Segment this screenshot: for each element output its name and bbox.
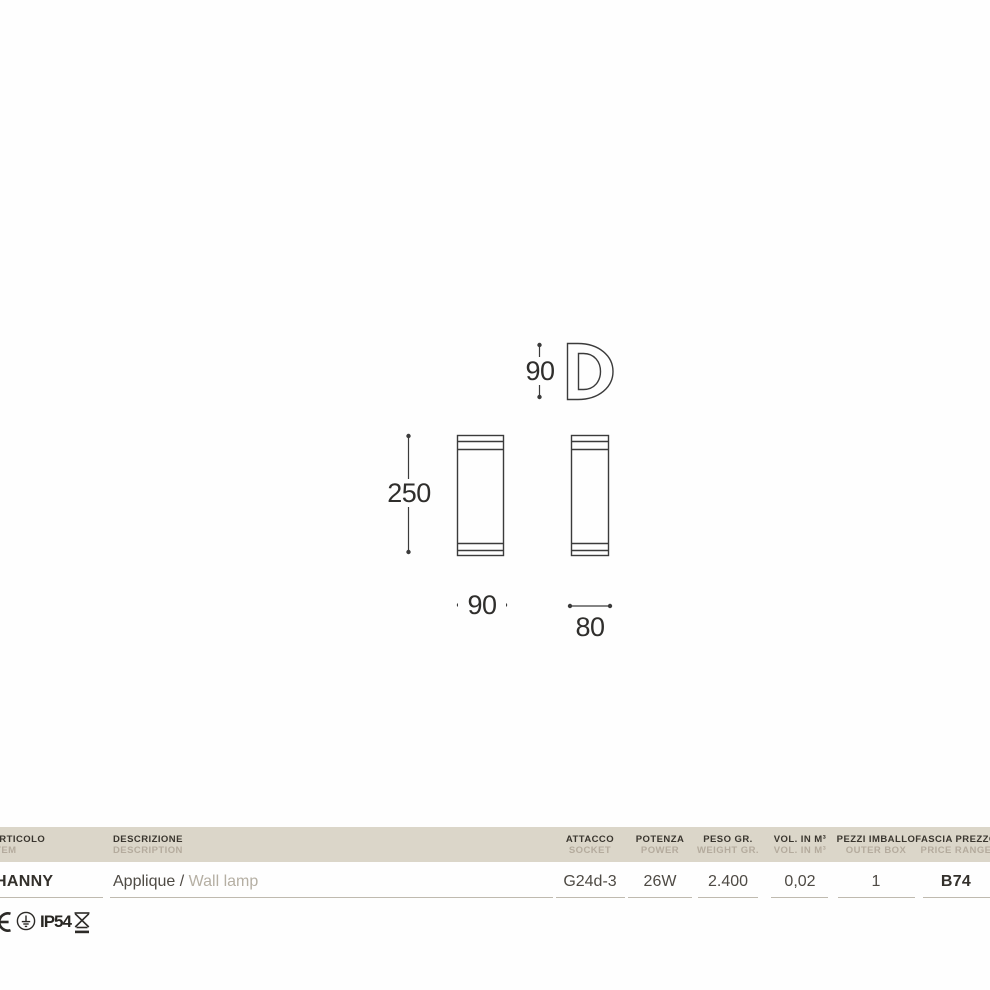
- certification-marks: IP54: [0, 905, 300, 941]
- cell-bottom-border: [838, 897, 915, 898]
- dimension-line-body-depth: [568, 604, 612, 608]
- cell-bottom-border: [771, 897, 828, 898]
- ce-mark-icon: [0, 911, 14, 933]
- cell-bottom-border: [923, 897, 990, 898]
- cell-bottom-border: [628, 897, 692, 898]
- cell-item-name: HANNY: [0, 862, 125, 898]
- profile-view-d-shape: [568, 344, 614, 400]
- side-view: [572, 436, 609, 556]
- column-header-item: ARTICOLO ITEM: [0, 827, 112, 862]
- cell-description: Applique / Wall lamp: [113, 862, 553, 898]
- dimension-body-height: 250: [378, 479, 440, 507]
- description-english: Wall lamp: [184, 873, 258, 890]
- spec-table-row: HANNY Applique / Wall lamp G24d-3 26W 2.…: [0, 862, 990, 898]
- column-header-price-range: FASCIA PREZZO PRICE RANGE: [891, 827, 990, 862]
- dimension-profile-height: 90: [514, 357, 566, 385]
- earth-symbol-icon: [16, 911, 36, 931]
- dimension-body-depth: 80: [564, 613, 616, 641]
- catalog-page: 90 250 90 80 ARTICOLO ITEM DESCRIZIONE D…: [0, 0, 990, 990]
- column-header-description: DESCRIZIONE DESCRIPTION: [113, 827, 333, 862]
- dimension-body-width: 90: [458, 591, 506, 619]
- description-italian: Applique /: [113, 873, 184, 890]
- weee-crossed-bin-icon: [72, 908, 92, 936]
- cell-bottom-border: [556, 897, 625, 898]
- cell-price-range: B74: [891, 862, 990, 898]
- ip-rating-label: IP54: [40, 912, 71, 932]
- cell-bottom-border: [110, 897, 553, 898]
- cell-bottom-border: [698, 897, 758, 898]
- spec-table-header: ARTICOLO ITEM DESCRIZIONE DESCRIPTION AT…: [0, 827, 990, 862]
- cell-bottom-border: [0, 897, 103, 898]
- front-view: [458, 436, 504, 556]
